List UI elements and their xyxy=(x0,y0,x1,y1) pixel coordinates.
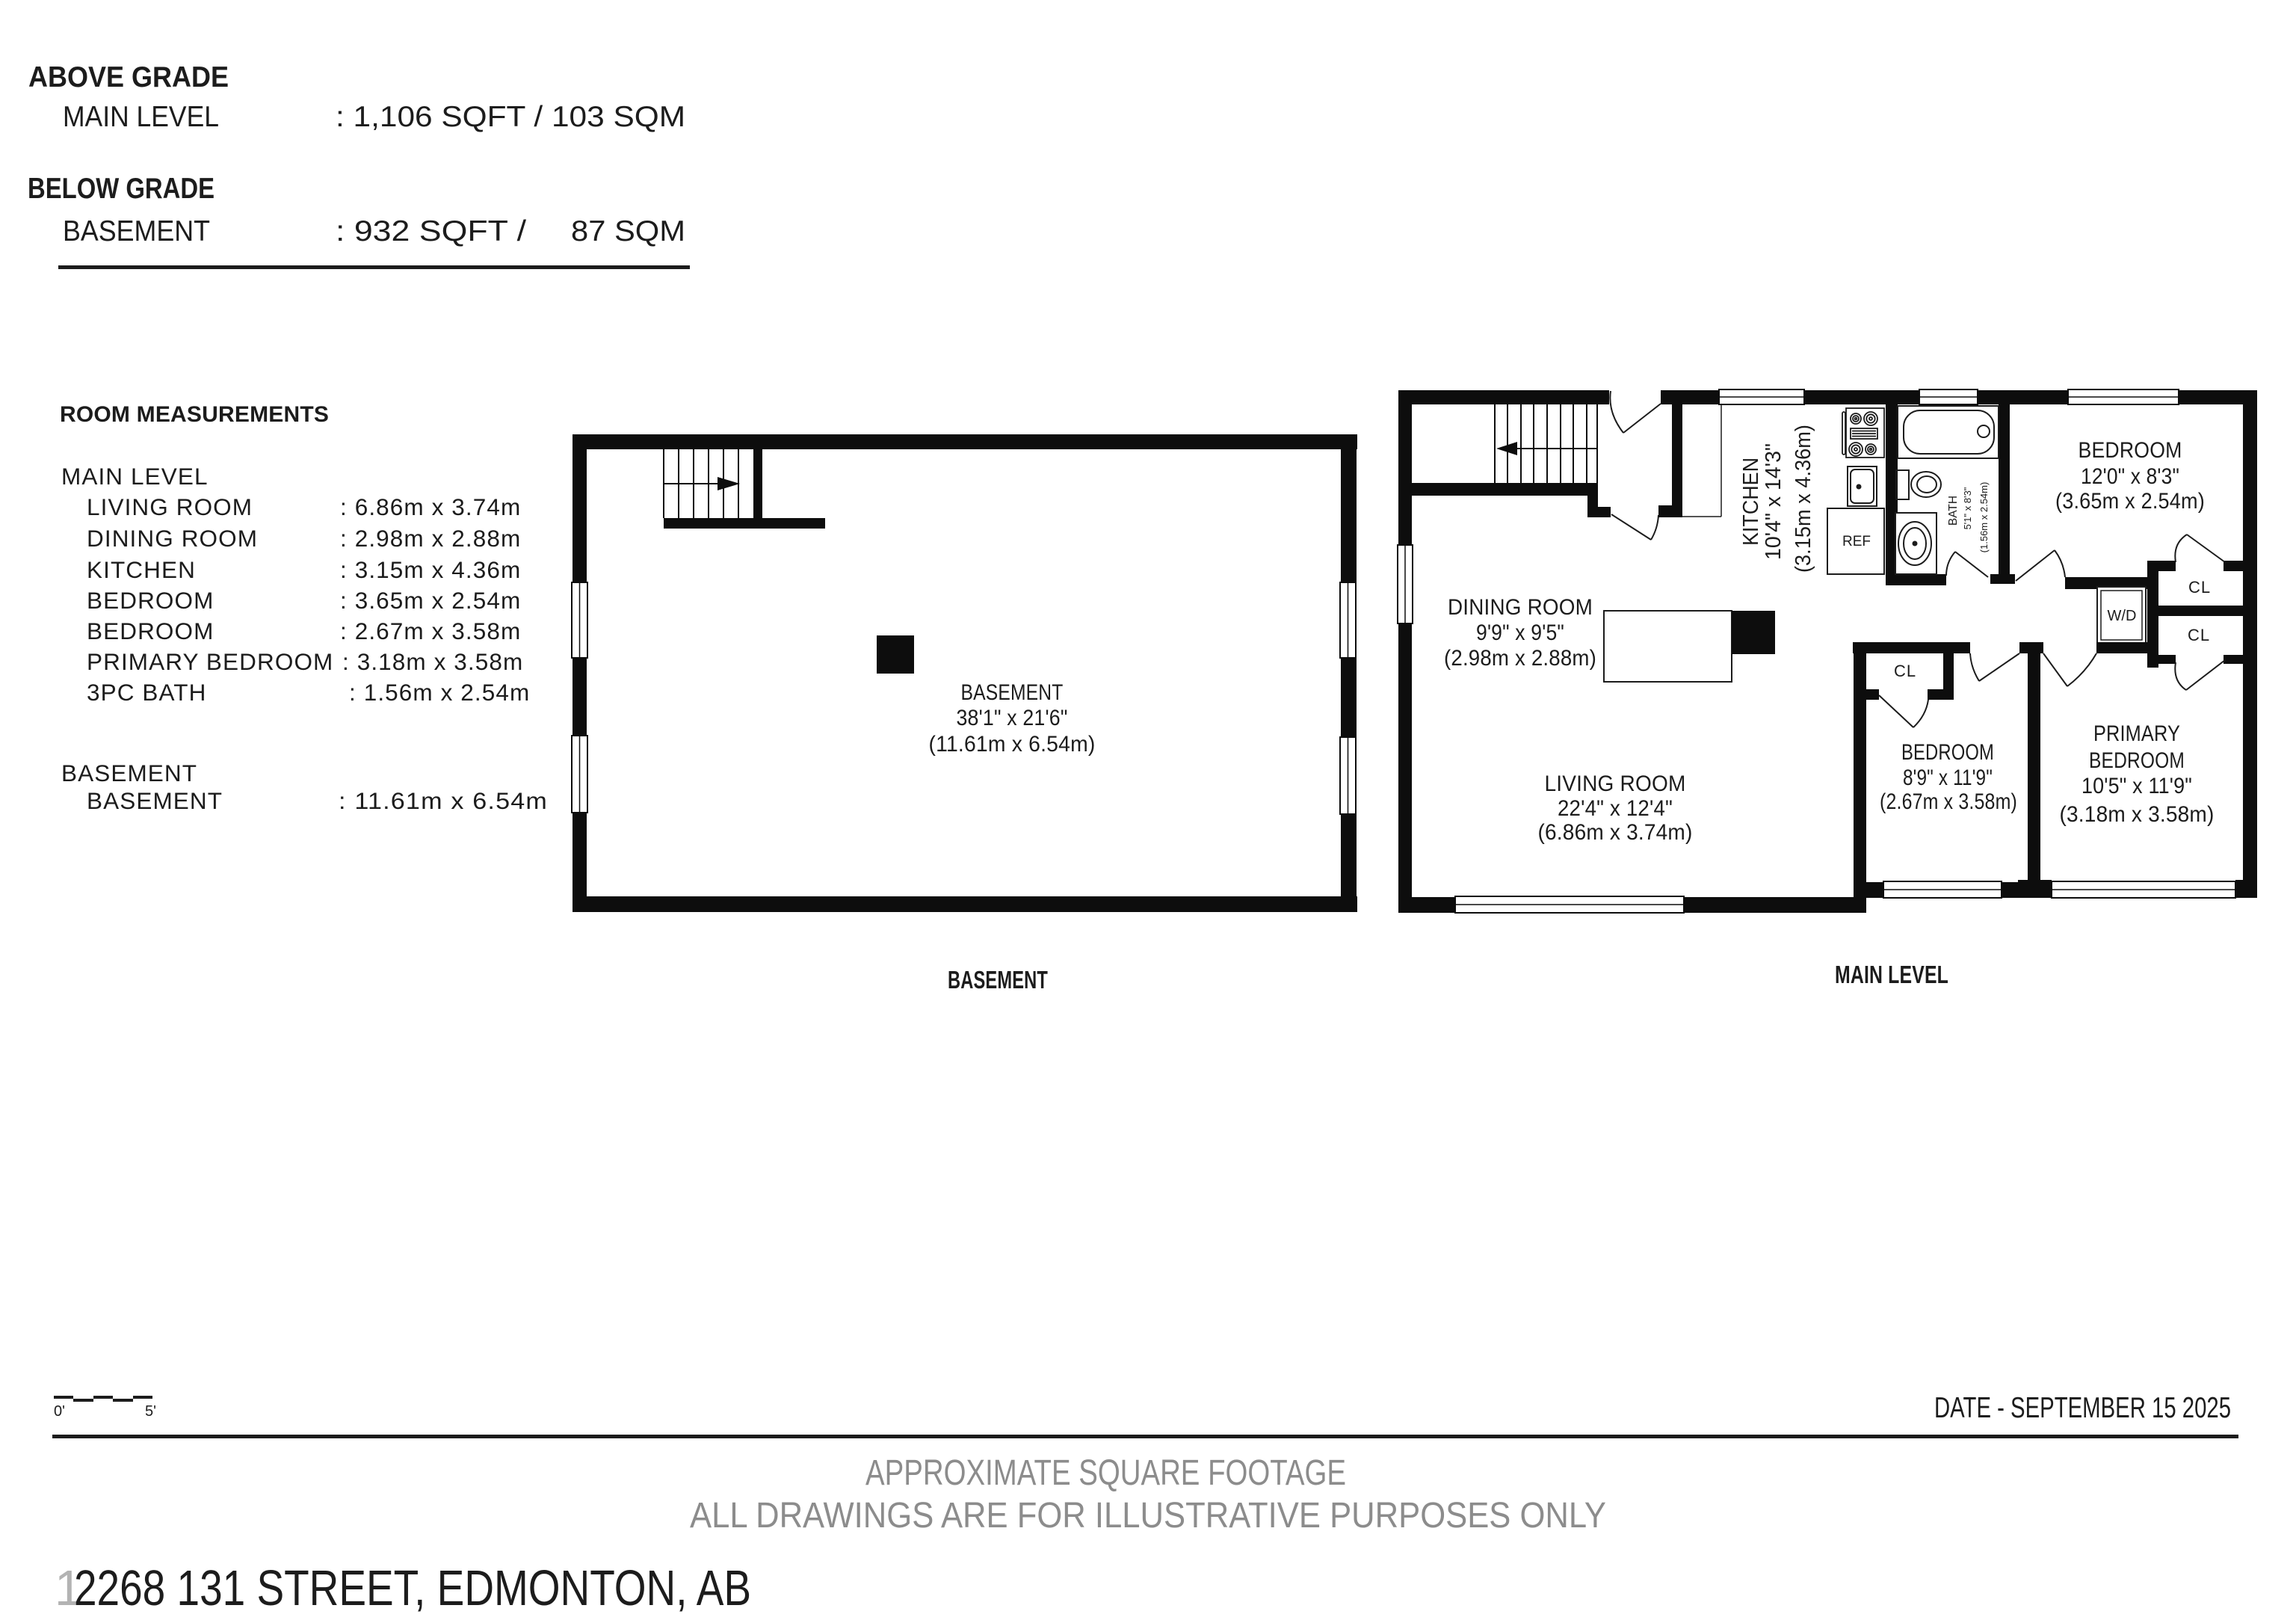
svg-text:: 3.18m x 3.58m: : 3.18m x 3.58m xyxy=(342,648,523,675)
svg-text:(2.67m x 3.58m): (2.67m x 3.58m) xyxy=(1880,789,2017,814)
svg-text:0': 0' xyxy=(54,1403,65,1420)
svg-text:BASEMENT: BASEMENT xyxy=(948,966,1048,994)
svg-text:BEDROOM: BEDROOM xyxy=(87,587,214,614)
svg-text:BASEMENT: BASEMENT xyxy=(87,787,223,814)
svg-text:22'4" x 12'4": 22'4" x 12'4" xyxy=(1558,796,1673,821)
svg-text:3PC BATH: 3PC BATH xyxy=(87,679,207,706)
svg-text:: 1.56m x 2.54m: : 1.56m x 2.54m xyxy=(349,679,530,706)
svg-text:(3.65m x 2.54m): (3.65m x 2.54m) xyxy=(2055,489,2205,514)
svg-text:10'4" x 14'3": 10'4" x 14'3" xyxy=(1762,443,1786,560)
svg-text:8'9" x 11'9": 8'9" x 11'9" xyxy=(1903,766,1993,790)
svg-text:BASEMENT: BASEMENT xyxy=(961,680,1064,705)
svg-text:9'9" x 9'5": 9'9" x 9'5" xyxy=(1476,620,1564,645)
svg-text:: 6.86m x 3.74m: : 6.86m x 3.74m xyxy=(340,493,521,520)
svg-text:: 2.98m x 2.88m: : 2.98m x 2.88m xyxy=(340,525,521,552)
svg-text:KITCHEN: KITCHEN xyxy=(1739,458,1763,546)
svg-text:W/D: W/D xyxy=(2108,608,2137,624)
svg-text:87 SQM: 87 SQM xyxy=(571,215,685,247)
svg-text:CL: CL xyxy=(1894,662,1916,680)
svg-text:APPROXIMATE SQUARE FOOTAGE: APPROXIMATE SQUARE FOOTAGE xyxy=(865,1453,1346,1493)
svg-text:ALL DRAWINGS ARE FOR ILLUSTRAT: ALL DRAWINGS ARE FOR ILLUSTRATIVE PURPOS… xyxy=(690,1496,1606,1536)
svg-text:: 3.65m x 2.54m: : 3.65m x 2.54m xyxy=(340,587,521,614)
svg-text:5': 5' xyxy=(145,1403,156,1420)
svg-text:BATH: BATH xyxy=(1947,496,1960,526)
svg-text:ROOM MEASUREMENTS: ROOM MEASUREMENTS xyxy=(60,402,329,427)
svg-text:DATE - SEPTEMBER 15 2025: DATE - SEPTEMBER 15 2025 xyxy=(1934,1392,2231,1424)
svg-text:PRIMARY BEDROOM: PRIMARY BEDROOM xyxy=(87,648,333,675)
svg-text:38'1" x 21'6": 38'1" x 21'6" xyxy=(957,706,1068,730)
svg-text:BELOW GRADE: BELOW GRADE xyxy=(28,173,215,205)
svg-text:MAIN LEVEL: MAIN LEVEL xyxy=(1835,961,1948,988)
svg-text:10'5" x 11'9": 10'5" x 11'9" xyxy=(2081,774,2192,798)
svg-text:5'1" x 8'3": 5'1" x 8'3" xyxy=(1962,487,1973,529)
svg-text:ABOVE GRADE: ABOVE GRADE xyxy=(28,61,229,93)
svg-text:LIVING ROOM: LIVING ROOM xyxy=(1545,772,1686,796)
svg-text:(6.86m x 3.74m): (6.86m x 3.74m) xyxy=(1538,820,1693,845)
svg-text:BEDROOM: BEDROOM xyxy=(1901,740,1994,765)
svg-text:REF: REF xyxy=(1842,534,1871,549)
svg-text:CL: CL xyxy=(2188,626,2210,644)
svg-text:: 2.67m x 3.58m: : 2.67m x 3.58m xyxy=(340,618,521,644)
svg-text:2268 131 STREET, EDMONTON, AB: 2268 131 STREET, EDMONTON, AB xyxy=(74,1560,751,1616)
svg-text:LIVING ROOM: LIVING ROOM xyxy=(87,493,253,520)
svg-text:: 1,106 SQFT / 103 SQM: : 1,106 SQFT / 103 SQM xyxy=(336,101,685,133)
svg-text:BASEMENT: BASEMENT xyxy=(63,215,210,247)
svg-text:KITCHEN: KITCHEN xyxy=(87,556,196,583)
svg-text:DINING ROOM: DINING ROOM xyxy=(1448,595,1593,620)
svg-text:BASEMENT: BASEMENT xyxy=(61,760,197,786)
svg-text:: 11.61m x 6.54m: : 11.61m x 6.54m xyxy=(339,787,548,814)
svg-text:(3.15m x 4.36m): (3.15m x 4.36m) xyxy=(1792,425,1815,573)
svg-text:(11.61m x 6.54m): (11.61m x 6.54m) xyxy=(929,732,1096,757)
svg-text:(1.56m x 2.54m): (1.56m x 2.54m) xyxy=(1978,482,1990,553)
svg-text:BEDROOM: BEDROOM xyxy=(2079,438,2182,463)
svg-text:MAIN LEVEL: MAIN LEVEL xyxy=(63,101,219,133)
svg-text:MAIN LEVEL: MAIN LEVEL xyxy=(61,463,209,490)
svg-text:DINING ROOM: DINING ROOM xyxy=(87,525,258,552)
svg-text:CL: CL xyxy=(2188,578,2211,597)
svg-text:PRIMARY: PRIMARY xyxy=(2093,721,2180,746)
svg-text:(3.18m x 3.58m): (3.18m x 3.58m) xyxy=(2060,802,2215,827)
svg-text:12'0" x 8'3": 12'0" x 8'3" xyxy=(2081,464,2179,489)
svg-text:(2.98m x 2.88m): (2.98m x 2.88m) xyxy=(1444,646,1596,671)
svg-text:BEDROOM: BEDROOM xyxy=(87,618,214,644)
svg-text:BEDROOM: BEDROOM xyxy=(2089,748,2185,773)
svg-text:: 932 SQFT /: : 932 SQFT / xyxy=(336,215,526,247)
svg-text:: 3.15m x 4.36m: : 3.15m x 4.36m xyxy=(340,556,521,583)
